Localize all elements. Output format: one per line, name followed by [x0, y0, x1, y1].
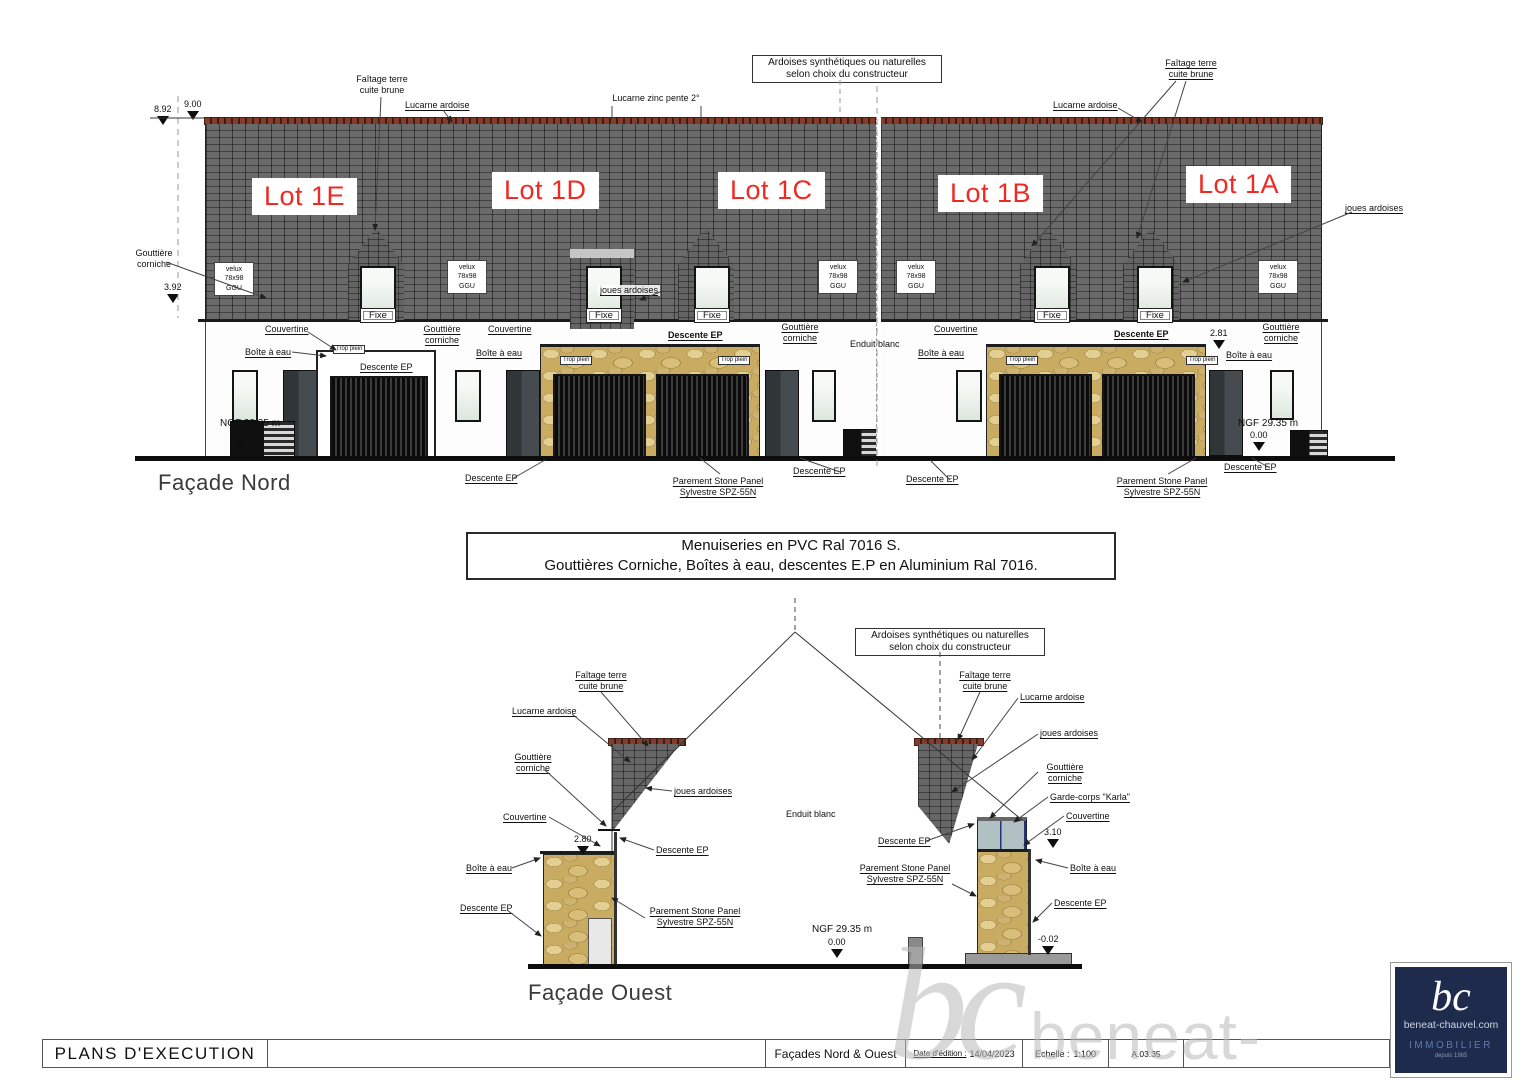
- logo-square: bc beneat-chauvel.com IMMOBILIER depuis …: [1395, 967, 1507, 1073]
- annotation-label: joues ardoises: [1040, 728, 1098, 739]
- annotation-label: Descente EP: [1054, 898, 1107, 909]
- project-title: PLANS D'EXECUTION: [43, 1040, 267, 1067]
- annotation-label: Couvertine: [1066, 811, 1110, 822]
- annotation-label: 3.10: [1044, 827, 1062, 848]
- annotation-label: -0.02: [1038, 934, 1059, 955]
- annotation-label: Enduit blanc: [786, 809, 836, 820]
- annotation-label: Descente EP: [878, 836, 931, 847]
- titleblock-empty: [267, 1039, 766, 1068]
- annotation-label: Lucarne ardoise: [1020, 692, 1085, 703]
- annotation-label: NGF 29.35 m: [812, 924, 872, 936]
- annotation-label: Boîte à eau: [1070, 863, 1116, 874]
- annotation-label: Faîtage terre cuite brune: [954, 670, 1016, 691]
- annotation-label: Garde-corps "Karla": [1050, 792, 1130, 803]
- annotation-label: Gouttière corniche: [1040, 762, 1090, 783]
- annotation-label: Couvertine: [503, 812, 547, 823]
- titleblock-project: PLANS D'EXECUTION: [42, 1039, 268, 1068]
- annotation-label: Parement Stone Panel Sylvestre SPZ-55N: [856, 863, 954, 884]
- annotation-label: Boîte à eau: [466, 863, 512, 874]
- annotation-label: Parement Stone Panel Sylvestre SPZ-55N: [646, 906, 744, 927]
- titleblock-ref: A.03.35: [1108, 1039, 1184, 1068]
- level-mark-icon: [831, 949, 843, 958]
- west-annotations: Ardoises synthétiques ou naturelles selo…: [0, 0, 1528, 1080]
- scale-value: 1:100: [1074, 1049, 1097, 1059]
- titleblock-scale: Echelle : 1:100: [1022, 1039, 1109, 1068]
- titleblock-empty-2: [1183, 1039, 1390, 1068]
- company-logo: bc beneat-chauvel.com IMMOBILIER depuis …: [1390, 962, 1512, 1078]
- annotation-label: Ardoises synthétiques ou naturelles selo…: [855, 628, 1045, 656]
- annotation-label: Descente EP: [460, 903, 513, 914]
- logo-since: depuis 1965: [1435, 1053, 1468, 1059]
- annotation-label: Gouttière corniche: [508, 752, 558, 773]
- annotation-label: Descente EP: [656, 845, 709, 856]
- annotation-label: Lucarne ardoise: [512, 706, 577, 717]
- level-mark-icon: [1047, 839, 1059, 848]
- annotation-label: Faîtage terre cuite brune: [570, 670, 632, 691]
- titleblock-sheet: Façades Nord & Ouest: [765, 1039, 906, 1068]
- logo-site: beneat-chauvel.com: [1404, 1019, 1499, 1031]
- annotation-label: 0.00: [828, 937, 846, 958]
- titleblock-date: Date d'édition : 14/04/2023: [905, 1039, 1023, 1068]
- sheet-name: Façades Nord & Ouest: [766, 1040, 905, 1067]
- scale-label: Echelle :: [1035, 1049, 1070, 1059]
- plan-sheet: Façade Nord Menuiseries en PVC Ral 7016 …: [0, 0, 1528, 1080]
- annotation-label: joues ardoises: [674, 786, 732, 797]
- level-mark-icon: [577, 846, 589, 855]
- level-mark-icon: [1042, 946, 1054, 955]
- date-value: 14/04/2023: [970, 1049, 1015, 1059]
- logo-tagline: IMMOBILIER: [1409, 1040, 1493, 1051]
- date-label: Date d'édition :: [913, 1049, 966, 1058]
- logo-monogram: bc: [1431, 981, 1471, 1015]
- annotation-label: 2.80: [574, 834, 592, 855]
- sheet-ref: A.03.35: [1109, 1040, 1183, 1067]
